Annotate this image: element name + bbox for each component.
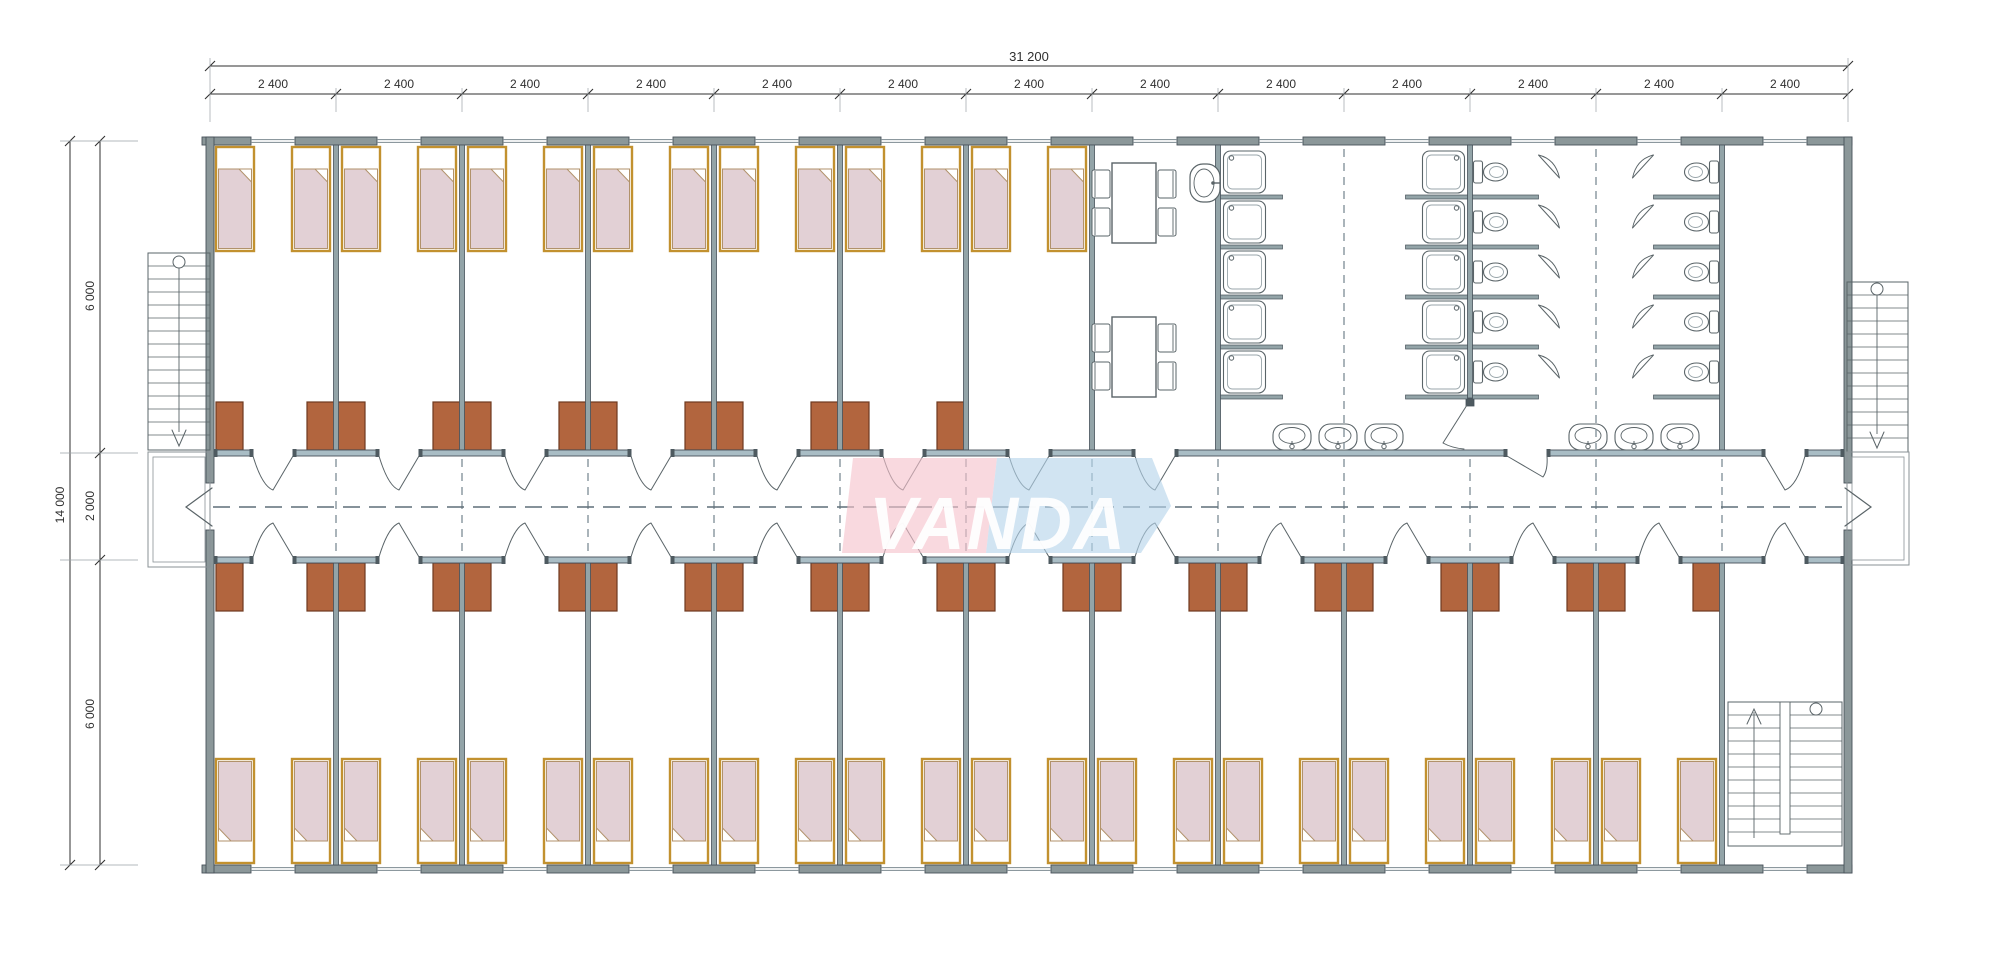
dim-depth-bottom: 6 000 (83, 699, 97, 729)
wardrobe (716, 402, 743, 450)
wardrobe (464, 563, 491, 611)
door-swing (253, 523, 293, 557)
bed (1678, 759, 1716, 863)
door-swing (1261, 523, 1301, 557)
wardrobe (307, 563, 334, 611)
dim-depth-corridor: 2 000 (83, 491, 97, 521)
bed (468, 147, 506, 251)
wardrobe (1189, 563, 1216, 611)
wardrobe (590, 402, 617, 450)
wardrobe (685, 563, 712, 611)
break-mark-left (186, 488, 212, 526)
logo-text: VANDA (869, 482, 1127, 565)
toilet-stall (1633, 205, 1719, 233)
bed (1174, 759, 1212, 863)
dim-bay-width: 2 400 (384, 77, 414, 91)
wardrobe (685, 402, 712, 450)
door-swing (1507, 456, 1547, 477)
bed (1224, 759, 1262, 863)
dim-bay-width: 2 400 (1014, 77, 1044, 91)
wardrobe (1567, 563, 1594, 611)
dim-bay-width: 2 400 (636, 77, 666, 91)
window (377, 140, 421, 871)
toilet-stall (1474, 205, 1560, 233)
door-swing (379, 523, 419, 557)
bed (594, 147, 632, 251)
shower-column (1221, 151, 1283, 399)
wardrobe (433, 563, 460, 611)
wardrobe (464, 402, 491, 450)
dim-bay-width: 2 400 (510, 77, 540, 91)
wardrobe (216, 563, 243, 611)
vanda-logo: VANDA (842, 458, 1171, 565)
door-swing (631, 456, 671, 490)
toilet-stall (1474, 305, 1560, 333)
toilet-stall (1474, 155, 1560, 183)
door-swing (505, 523, 545, 557)
shower-stall (1423, 201, 1465, 243)
shower-stall (1224, 201, 1266, 243)
washbasin (1319, 424, 1357, 450)
wash-sink (1190, 164, 1220, 202)
bed (1476, 759, 1514, 863)
chair (1092, 324, 1110, 352)
shower-stall (1423, 351, 1465, 393)
washbasin (1569, 424, 1607, 450)
dim-bay-width: 2 400 (888, 77, 918, 91)
washbasin (1661, 424, 1699, 450)
window (755, 140, 799, 871)
wardrobe (1220, 563, 1247, 611)
shower-stall (1224, 301, 1266, 343)
dim-depth-top: 6 000 (83, 281, 97, 311)
wardrobe (338, 402, 365, 450)
toilet-stall (1633, 255, 1719, 283)
bed (468, 759, 506, 863)
bed (720, 147, 758, 251)
wardrobe (307, 402, 334, 450)
wardrobe (590, 563, 617, 611)
dim-bay-width: 2 400 (258, 77, 288, 91)
door-swing (1387, 523, 1427, 557)
dining-table (1092, 163, 1176, 243)
bed (418, 147, 456, 251)
door-swing (1513, 523, 1553, 557)
shower-stall (1423, 151, 1465, 193)
wardrobe (716, 563, 743, 611)
dining-room (1092, 163, 1220, 397)
bed (544, 147, 582, 251)
bed (292, 759, 330, 863)
bed (418, 759, 456, 863)
bed (544, 759, 582, 863)
bed (846, 759, 884, 863)
door-swing (757, 456, 797, 490)
bed (1048, 759, 1086, 863)
chair (1158, 170, 1176, 198)
internal-stair (1728, 702, 1842, 846)
dim-bay-width: 2 400 (1140, 77, 1170, 91)
shower-column (1406, 151, 1468, 399)
washbasin (1273, 424, 1311, 450)
break-mark-right (1845, 488, 1871, 526)
wardrobe (937, 563, 964, 611)
door-swing (1765, 523, 1805, 557)
chair (1092, 362, 1110, 390)
corridor-wall-top (214, 449, 1845, 457)
bed (670, 759, 708, 863)
shower-stall (1224, 251, 1266, 293)
door-swing (505, 456, 545, 490)
window (251, 140, 295, 871)
dim-bay-width: 2 400 (1518, 77, 1548, 91)
dim-overall-depth: 14 000 (53, 486, 67, 523)
bed (1552, 759, 1590, 863)
door-swing (1639, 523, 1679, 557)
bed (292, 147, 330, 251)
dim-bay-width: 2 400 (1266, 77, 1296, 91)
shower-stall (1224, 351, 1266, 393)
wardrobe (1598, 563, 1625, 611)
partitions-bottom (334, 563, 1725, 865)
wardrobe (338, 563, 365, 611)
bed (342, 147, 380, 251)
wardrobe (559, 402, 586, 450)
wardrobe (1063, 563, 1090, 611)
washbasin (1365, 424, 1403, 450)
chair (1092, 170, 1110, 198)
bed (1048, 147, 1086, 251)
chair (1158, 362, 1176, 390)
bed (342, 759, 380, 863)
bed (796, 759, 834, 863)
wardrobe (1441, 563, 1468, 611)
bed (594, 759, 632, 863)
external-stair-right (1847, 282, 1909, 565)
toilet-column (1473, 155, 1560, 399)
window (503, 140, 547, 871)
toilet-stall (1474, 355, 1560, 383)
wardrobe (968, 563, 995, 611)
dining-table (1092, 317, 1176, 397)
dim-bay-width: 2 400 (762, 77, 792, 91)
wardrobe (433, 402, 460, 450)
bed (1300, 759, 1338, 863)
bed (1098, 759, 1136, 863)
door-swing (631, 523, 671, 557)
toilet-stall (1633, 305, 1719, 333)
bed (216, 759, 254, 863)
floor-plan: 31 2002 4002 4002 4002 4002 4002 4002 40… (0, 0, 2000, 977)
wardrobe (842, 563, 869, 611)
wardrobe (811, 563, 838, 611)
door-swing (1765, 456, 1805, 490)
bed (216, 147, 254, 251)
wardrobe (216, 402, 243, 450)
bed (1350, 759, 1388, 863)
bed (720, 759, 758, 863)
bed (1602, 759, 1640, 863)
window (629, 140, 673, 871)
bed (922, 147, 960, 251)
wardrobe (1094, 563, 1121, 611)
floor-plan-drawing: 31 2002 4002 4002 4002 4002 4002 4002 40… (0, 0, 2000, 977)
door-swing (1443, 405, 1467, 449)
chair (1158, 324, 1176, 352)
bed (670, 147, 708, 251)
bed (796, 147, 834, 251)
door-swing (253, 456, 293, 490)
wardrobe (1693, 563, 1720, 611)
chair (1092, 208, 1110, 236)
dim-overall-width: 31 200 (1009, 49, 1049, 64)
door-swing (379, 456, 419, 490)
dim-bay-width: 2 400 (1392, 77, 1422, 91)
wardrobe (842, 402, 869, 450)
wardrobe (937, 402, 964, 450)
chair (1158, 208, 1176, 236)
bed (846, 147, 884, 251)
bed (972, 147, 1010, 251)
wardrobe (559, 563, 586, 611)
bed (922, 759, 960, 863)
external-stair-left (148, 253, 210, 567)
washbasin (1615, 424, 1653, 450)
toilet-stall (1633, 155, 1719, 183)
wardrobe (1315, 563, 1342, 611)
toilet-stall (1633, 355, 1719, 383)
toilet-stall (1474, 255, 1560, 283)
dim-bay-width: 2 400 (1770, 77, 1800, 91)
toilet-column (1633, 155, 1720, 399)
shower-stall (1423, 301, 1465, 343)
shower-stall (1423, 251, 1465, 293)
door-swing (757, 523, 797, 557)
bed (1426, 759, 1464, 863)
shower-stall (1224, 151, 1266, 193)
bed (972, 759, 1010, 863)
wardrobe (1346, 563, 1373, 611)
wardrobe (1472, 563, 1499, 611)
wardrobe (811, 402, 838, 450)
dim-bay-width: 2 400 (1644, 77, 1674, 91)
